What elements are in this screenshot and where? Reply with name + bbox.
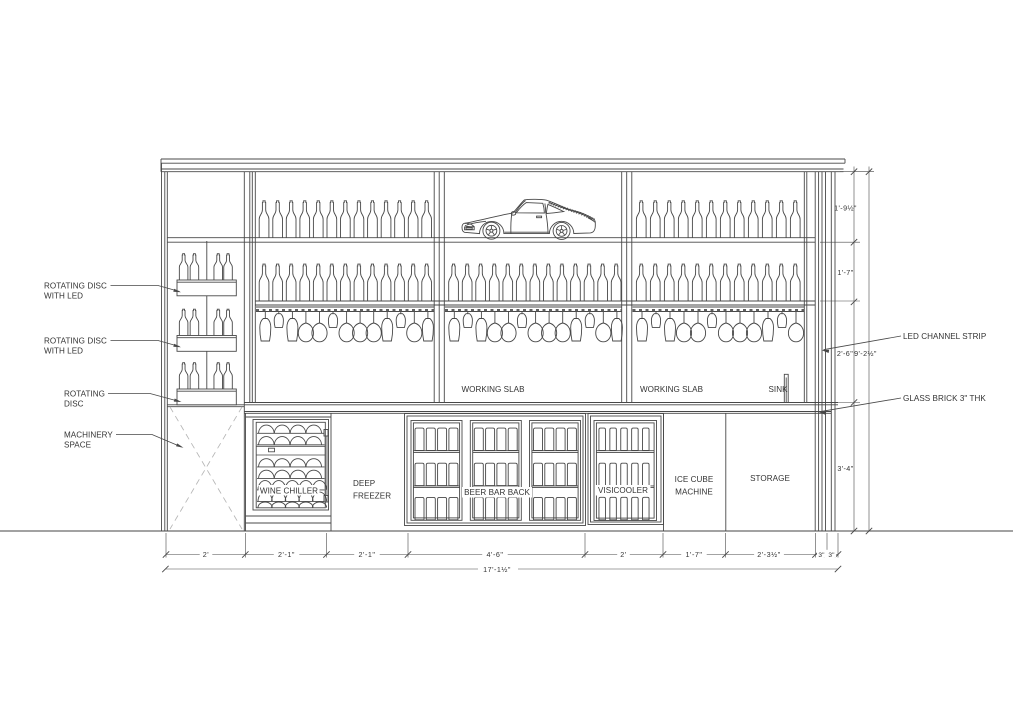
svg-text:ROTATING DISC: ROTATING DISC	[44, 282, 107, 291]
svg-text:SPACE: SPACE	[64, 441, 92, 450]
svg-text:WITH LED: WITH LED	[44, 347, 83, 356]
svg-text:LED CHANNEL STRIP: LED CHANNEL STRIP	[903, 332, 986, 341]
svg-text:WITH LED: WITH LED	[44, 292, 83, 301]
svg-text:DEEP: DEEP	[353, 479, 375, 488]
svg-text:1'-7": 1'-7"	[685, 550, 702, 559]
svg-text:WORKING SLAB: WORKING SLAB	[640, 385, 703, 394]
svg-text:1'-7": 1'-7"	[837, 268, 853, 277]
svg-text:FREEZER: FREEZER	[353, 492, 391, 501]
svg-text:GLASS BRICK 3" THK: GLASS BRICK 3" THK	[903, 394, 986, 403]
svg-text:VISICOOLER: VISICOOLER	[598, 486, 648, 495]
svg-text:ROTATING: ROTATING	[64, 390, 105, 399]
svg-text:MACHINERY: MACHINERY	[64, 431, 113, 440]
svg-text:STORAGE: STORAGE	[750, 474, 790, 483]
svg-text:ROTATING DISC: ROTATING DISC	[44, 337, 107, 346]
svg-text:2': 2'	[203, 550, 210, 559]
svg-text:ICE CUBE: ICE CUBE	[675, 475, 714, 484]
svg-text:MACHINE: MACHINE	[675, 488, 713, 497]
svg-text:WORKING SLAB: WORKING SLAB	[461, 385, 524, 394]
svg-text:SINK: SINK	[768, 385, 788, 394]
svg-text:9'-2½": 9'-2½"	[854, 349, 877, 358]
svg-text:2'-3½": 2'-3½"	[757, 550, 781, 559]
svg-text:2'-1": 2'-1"	[278, 550, 295, 559]
svg-text:3": 3"	[818, 552, 825, 559]
svg-text:2': 2'	[620, 550, 627, 559]
svg-text:1'-9½": 1'-9½"	[834, 204, 857, 213]
svg-text:17'-1½": 17'-1½"	[483, 565, 511, 574]
svg-text:3": 3"	[828, 552, 835, 559]
svg-text:3'-4": 3'-4"	[837, 464, 853, 473]
svg-text:2'-6": 2'-6"	[837, 349, 853, 358]
svg-text:2'-1": 2'-1"	[358, 550, 375, 559]
svg-text:DISC: DISC	[64, 400, 84, 409]
svg-text:BEER BAR BACK: BEER BAR BACK	[464, 488, 530, 497]
svg-text:4'-6": 4'-6"	[486, 550, 503, 559]
svg-text:WINE CHILLER: WINE CHILLER	[260, 487, 318, 496]
